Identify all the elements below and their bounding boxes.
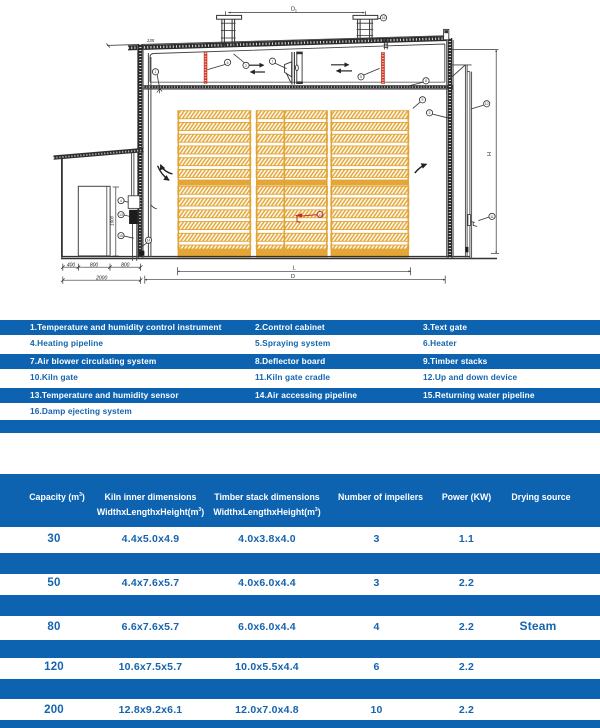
svg-text:3: 3 — [429, 111, 431, 115]
svg-text:6: 6 — [227, 61, 229, 65]
svg-text:D1: D1 — [291, 6, 297, 12]
svg-text:9: 9 — [422, 98, 424, 102]
svg-text:400: 400 — [67, 262, 76, 268]
svg-text:16: 16 — [382, 16, 386, 20]
svg-text:7: 7 — [272, 60, 274, 64]
svg-text:D: D — [291, 274, 295, 280]
svg-text:14: 14 — [147, 239, 151, 243]
svg-text:800: 800 — [90, 262, 99, 268]
svg-text:15: 15 — [119, 234, 123, 238]
svg-text:10: 10 — [485, 102, 489, 106]
svg-text:1900: 1900 — [110, 215, 115, 226]
svg-text:13: 13 — [119, 213, 123, 217]
svg-text:L: L — [292, 266, 295, 272]
svg-text:2000: 2000 — [95, 275, 107, 281]
svg-text:H: H — [487, 152, 493, 156]
svg-text:5: 5 — [360, 75, 362, 79]
svg-text:1: 1 — [155, 70, 157, 74]
svg-text:13: 13 — [318, 213, 322, 217]
svg-text:800: 800 — [121, 262, 130, 268]
svg-text:4: 4 — [120, 199, 122, 203]
svg-text:8: 8 — [425, 79, 427, 83]
svg-text:2: 2 — [245, 64, 247, 68]
svg-text:11: 11 — [490, 215, 494, 219]
svg-text:135: 135 — [147, 38, 155, 43]
